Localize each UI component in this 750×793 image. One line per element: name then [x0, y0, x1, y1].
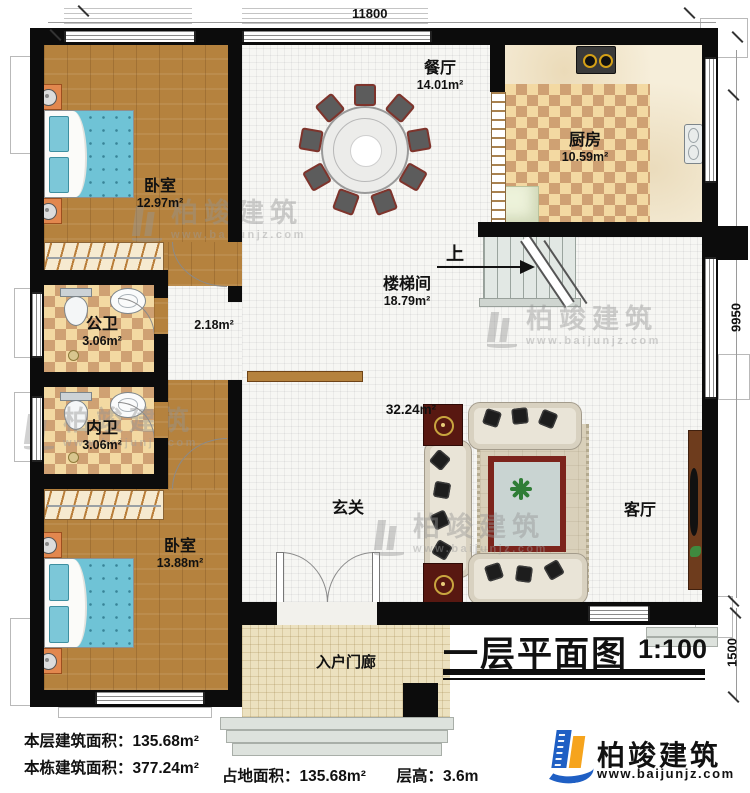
dim-line-top: [48, 22, 716, 23]
label-dining: 餐厅 14.01m²: [405, 60, 475, 92]
entry-door-gap: [277, 602, 377, 625]
sofa-pillow: [511, 407, 529, 425]
plan-scale: 1:100: [638, 634, 707, 665]
coffee-table: [488, 456, 566, 552]
label-kitchen: 厨房 10.59m²: [545, 132, 625, 164]
room-name: 厨房: [545, 132, 625, 150]
window-right-hall: [705, 257, 716, 399]
kitchen-sink: [684, 124, 703, 164]
room-name: 卧室: [130, 538, 230, 556]
burner-icon: [583, 54, 597, 68]
wardrobe-top-bedroom: [44, 242, 164, 272]
kitchen-folding-door: [491, 92, 506, 222]
stat-value: 377.24m²: [133, 760, 199, 777]
sofa-pillow: [433, 481, 452, 500]
label-hall: 玄关: [316, 500, 380, 518]
wall-bath2-bed2: [30, 474, 168, 489]
stat-floor-area: 本层建筑面积：135.68m²: [24, 729, 199, 751]
dining-chair: [354, 84, 376, 106]
dining-chair: [298, 127, 323, 152]
room-area: 32.24m²: [375, 402, 447, 417]
label-public-bath: 公卫 3.06m²: [62, 316, 142, 348]
floor-drain: [68, 452, 79, 463]
pillow: [49, 564, 69, 601]
room-area: 14.01m²: [405, 78, 475, 92]
wall-corridor-right: [228, 380, 242, 690]
compass-dot: [441, 423, 445, 427]
label-inner-bath: 内卫 3.06m²: [62, 420, 142, 452]
room-area: 12.97m²: [110, 196, 210, 210]
dining-table-center: [350, 135, 382, 167]
label-living: 客厅: [612, 502, 668, 520]
label-porch: 入户门廊: [296, 655, 396, 672]
stairs-up-label: 上: [446, 240, 464, 266]
wall-kitchen-bottom: [478, 222, 718, 237]
room-area: 2.18m²: [182, 318, 246, 332]
label-hall-area: 32.24m²: [375, 402, 447, 417]
room-name: 卧室: [110, 178, 210, 196]
dining-chair: [406, 127, 431, 152]
partition-screen: [247, 371, 363, 382]
window-bottom-bedroom: [95, 692, 205, 704]
title-underline-thick: [443, 669, 705, 675]
label-bedroom-top: 卧室 12.97m²: [110, 178, 210, 210]
dim-right: 9950: [729, 298, 744, 338]
room-name: 餐厅: [405, 60, 475, 78]
stat-value: 135.68m²: [133, 733, 199, 750]
stat-total-area: 本栋建筑面积：377.24m²: [24, 756, 199, 778]
wall-bath1-bath2: [30, 372, 168, 387]
stairs-up-arrow-shaft: [437, 266, 523, 268]
room-name: 玄关: [316, 500, 380, 518]
dim-top: 11800: [352, 6, 387, 21]
sink-basin: [688, 128, 699, 143]
room-name: 入户门廊: [296, 655, 396, 672]
porch-pier: [403, 683, 438, 717]
room-name: 内卫: [62, 420, 142, 438]
wall-corridor-stub: [228, 286, 242, 302]
wall-kitchen-left: [490, 28, 505, 92]
label-stairwell: 楼梯间 18.79m²: [365, 276, 449, 308]
sill-right-mid: [718, 354, 750, 400]
wall-left: [30, 28, 44, 706]
stat-value: 3.6m: [443, 768, 478, 785]
side-table: [423, 563, 463, 605]
brand-url: www.baijunjz.com: [597, 766, 735, 781]
bath-door-gap-2b: [154, 402, 168, 438]
stat-value: 135.68m²: [300, 768, 366, 785]
floor-plan-canvas: 上: [0, 0, 750, 793]
stat-label: 占地面积：: [222, 768, 300, 785]
entry-door-leaf-right: [372, 552, 380, 606]
room-name: 楼梯间: [365, 276, 449, 294]
entry-door-leaf-left: [276, 552, 284, 606]
wall-bed1-bath1: [30, 270, 168, 285]
compass-dot: [441, 582, 445, 586]
stat-footprint: 占地面积：135.68m² 层高：3.6m: [222, 764, 478, 786]
label-bedroom-bottom: 卧室 13.88m²: [130, 538, 230, 570]
stat-label: 本层建筑面积：: [24, 733, 133, 750]
tv-plant-icon: [690, 546, 701, 557]
window-top-bedroom: [64, 31, 196, 42]
window-left-bath2: [32, 396, 42, 462]
room-area: 13.88m²: [130, 556, 230, 570]
brand-logo-icon: [540, 728, 592, 786]
room-area: 10.59m²: [545, 150, 625, 164]
room-name: 客厅: [612, 502, 668, 520]
sink-basin: [688, 145, 699, 160]
sofa-pillow: [515, 565, 533, 583]
tv-screen: [690, 468, 698, 536]
sill-bedroom-bottom: [58, 707, 212, 718]
dim-tick: [727, 89, 739, 101]
window-top-dining: [242, 31, 432, 42]
window-bottom-living: [588, 606, 650, 621]
dim-tick: [683, 7, 695, 19]
porch-step: [220, 717, 454, 730]
sill-lines-top-2: [242, 8, 428, 28]
stove: [576, 46, 616, 74]
bed-bottom-bedroom: [44, 558, 134, 648]
room-area: 18.79m²: [365, 294, 449, 308]
stat-label: 本栋建筑面积：: [24, 760, 133, 777]
wall-bedroom-top-right: [228, 28, 242, 242]
window-left-bath1: [32, 292, 42, 358]
label-nook-area: 2.18m²: [182, 318, 246, 332]
wardrobe-bottom-bedroom: [44, 490, 164, 520]
porch-step: [226, 730, 448, 743]
dim-right-lower: 1500: [725, 633, 740, 673]
window-right-kitchen: [705, 57, 716, 183]
stat-label: 层高：: [397, 768, 444, 785]
pillow: [49, 606, 69, 643]
burner-icon: [599, 54, 613, 68]
title-underline-thin: [443, 678, 705, 680]
bath-door-gap-1b: [154, 298, 168, 334]
porch-step: [232, 743, 442, 756]
stairs-up-arrow-head: [520, 260, 535, 274]
dim-tick: [727, 691, 739, 703]
pillow: [49, 116, 69, 152]
room-name: 公卫: [62, 316, 142, 334]
floor-drain: [68, 350, 79, 361]
room-area: 3.06m²: [62, 334, 142, 348]
pillow: [49, 157, 69, 193]
room-area: 3.06m²: [62, 438, 142, 452]
